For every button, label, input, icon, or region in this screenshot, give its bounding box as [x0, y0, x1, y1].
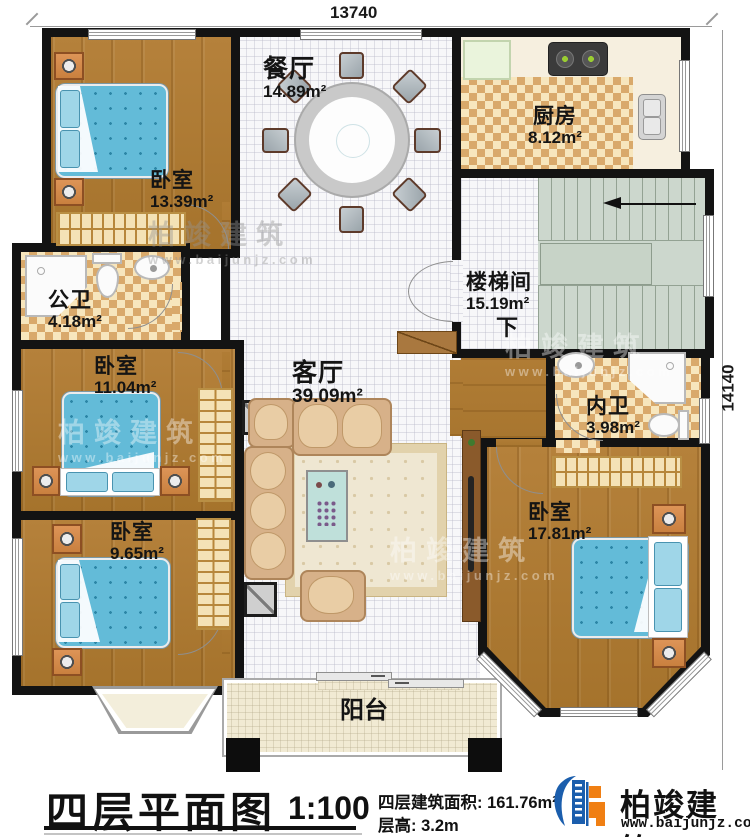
sofa-cushion — [342, 404, 382, 448]
pillow — [60, 130, 80, 168]
window-bedroom-sw-left — [12, 538, 23, 656]
sofa-cushion — [308, 576, 354, 614]
pillow — [654, 588, 682, 632]
floorplan-page: 13740 14140 — [0, 0, 750, 837]
stairs-landing-box — [540, 243, 652, 285]
label-kitchen: 厨房8.12m² — [528, 106, 582, 147]
label-stairs-down: 下 — [496, 316, 518, 340]
window-dining-top — [300, 29, 422, 40]
stairs-upper-flight — [538, 178, 705, 240]
brand-logo-icon — [550, 772, 614, 834]
kitchen-sink — [638, 94, 666, 140]
footer-height-line: 层高: 3.2m — [378, 812, 459, 836]
dimension-line-top — [30, 26, 712, 27]
label-bedroom-w: 卧室11.04m² — [94, 356, 156, 397]
sliding-door-leaf1 — [316, 672, 392, 681]
nightstand — [54, 52, 84, 80]
balcony-column-right — [468, 738, 502, 772]
nightstand — [652, 638, 686, 668]
pillow — [60, 602, 80, 638]
wardrobe — [552, 456, 682, 488]
window-private-bath-right — [699, 398, 710, 444]
toilet-bowl — [648, 413, 680, 437]
window-kitchen-right — [679, 60, 690, 152]
brand-url: www.baijunjz.com — [621, 816, 750, 832]
pillow — [112, 472, 154, 492]
label-public-bath: 公卫4.18m² — [48, 290, 102, 331]
label-living: 客厅39.09m² — [292, 360, 363, 408]
stairs-direction-arrow — [603, 197, 621, 209]
wardrobe — [196, 518, 231, 630]
bath-sink — [134, 255, 170, 280]
window-stairwell-right — [703, 215, 714, 297]
balcony-column-left — [226, 738, 260, 772]
brand-logo-svg — [550, 772, 614, 834]
title-underline — [44, 826, 356, 830]
plan-scale: 1:100 — [288, 790, 370, 827]
sofa-cushion — [254, 404, 288, 440]
sofa-cushion — [298, 404, 338, 448]
pillow — [66, 472, 108, 492]
bath-sink — [557, 352, 595, 378]
pillow — [60, 564, 80, 600]
hall-cabinet — [397, 331, 457, 354]
dimension-tick — [706, 13, 719, 26]
toilet-tank — [92, 253, 122, 264]
door-gap — [172, 282, 182, 332]
stairs-direction-line — [620, 203, 696, 205]
wardrobe — [56, 212, 186, 246]
nightstand — [52, 524, 82, 554]
dining-chair — [262, 128, 289, 153]
label-bedroom-nw: 卧室13.39m² — [150, 170, 213, 211]
stove — [548, 42, 608, 76]
tv-cabinet — [462, 430, 481, 622]
label-private-bath: 内卫3.98m² — [586, 396, 640, 437]
nightstand — [652, 504, 686, 534]
dimension-top: 13740 — [330, 3, 377, 23]
sliding-door-leaf2 — [388, 679, 464, 688]
dining-chair — [339, 52, 364, 79]
coffee-table — [306, 470, 348, 542]
label-stairwell: 楼梯间15.19m² — [466, 272, 532, 313]
label-balcony: 阳台 — [340, 698, 388, 724]
window-bedroom-nw-top — [88, 29, 196, 40]
stairs-lower-flight — [538, 286, 705, 349]
nightstand — [32, 466, 60, 496]
bay-window-bedroom-se-bottom — [560, 707, 638, 717]
sofa-cushion — [250, 492, 286, 530]
title-underline-2 — [44, 833, 362, 835]
pillow — [654, 542, 682, 586]
footer-area-line: 四层建筑面积: 161.76m² — [378, 789, 558, 813]
nightstand — [54, 178, 84, 206]
label-bedroom-sw: 卧室9.65m² — [110, 522, 164, 563]
label-dining: 餐厅14.89m² — [263, 56, 326, 101]
pillow — [60, 90, 80, 128]
nightstand — [52, 648, 82, 676]
dimension-tick — [26, 13, 39, 26]
label-bedroom-se: 卧室17.81m² — [528, 502, 591, 543]
sofa-cushion — [250, 532, 286, 570]
door-gap — [496, 439, 542, 447]
nightstand — [160, 466, 190, 496]
dining-chair — [414, 128, 441, 153]
end-table — [244, 582, 277, 617]
door-gap — [556, 440, 600, 453]
dining-chair — [339, 206, 364, 233]
window-bedroom-w-left — [12, 390, 23, 472]
passage-floor — [450, 360, 463, 436]
fridge — [463, 40, 511, 80]
wardrobe — [198, 388, 233, 502]
dimension-right: 14140 — [719, 364, 739, 411]
sofa-cushion — [250, 452, 286, 490]
bay-window-bedroom-sw — [92, 686, 218, 734]
